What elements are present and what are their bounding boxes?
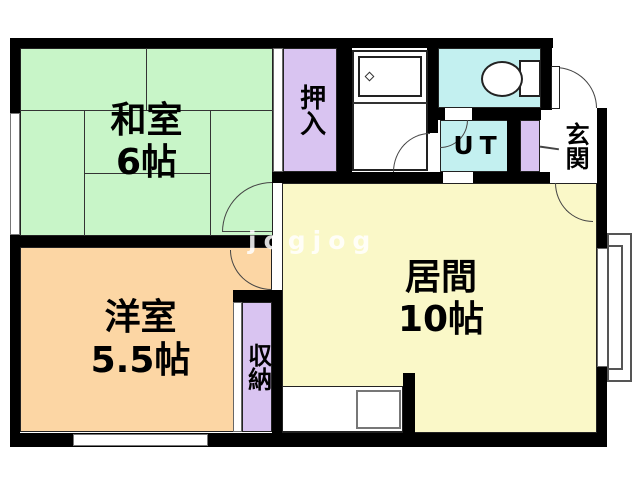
fusuma-oshiire <box>273 48 283 172</box>
wall-shuunou-right <box>272 290 282 433</box>
label-genkan: 玄関 <box>552 118 597 174</box>
label-shuunou: 収納 <box>242 302 272 432</box>
wall-washitsu-youshitsu <box>10 236 272 247</box>
wall-ima-top-left <box>272 172 443 183</box>
label-ima: 居間 10帖 <box>285 183 597 415</box>
genkan-text: 玄関 <box>562 122 587 170</box>
closet-genkan-floor <box>520 120 540 172</box>
wall-right-lower <box>597 365 607 433</box>
wall-ima-top-right <box>473 172 550 183</box>
wall-toilet-ut-left <box>427 108 445 120</box>
youshitsu-name: 洋室 <box>104 297 176 339</box>
bath-divider-line <box>353 102 427 104</box>
window-right-inner <box>607 245 623 370</box>
wall-bath-ut <box>427 48 438 133</box>
wall-oshiire-bath <box>337 38 352 172</box>
window-left <box>10 113 20 235</box>
entrance-door-leaf <box>551 66 560 109</box>
label-oshiire: 押入 <box>283 48 337 172</box>
toilet-bowl <box>481 61 523 97</box>
wall-right-upper <box>597 108 607 250</box>
shuunou-text: 収納 <box>244 343 269 391</box>
wall-top <box>10 38 553 48</box>
washitsu-name: 和室 <box>110 100 182 142</box>
ima-name: 居間 <box>405 257 477 299</box>
wall-toilet-ut-right <box>472 108 541 120</box>
window-bottom <box>73 434 208 446</box>
label-youshitsu: 洋室 5.5帖 <box>14 252 267 427</box>
label-ut: UT <box>440 120 510 172</box>
watermark: jogjog <box>248 226 377 255</box>
wall-left-upper <box>10 38 20 113</box>
oshiire-text: 押入 <box>296 84 323 136</box>
ut-text: UT <box>453 131 502 161</box>
floor-plan: 和室 6帖 洋室 5.5帖 居間 10帖 押入 収納 玄関 UT jogjog <box>0 0 640 480</box>
door-arc-entrance <box>555 67 597 108</box>
label-washitsu: 和室 6帖 <box>20 48 273 236</box>
ima-size: 10帖 <box>398 299 484 341</box>
washitsu-size: 6帖 <box>116 142 177 184</box>
youshitsu-size: 5.5帖 <box>91 340 191 382</box>
